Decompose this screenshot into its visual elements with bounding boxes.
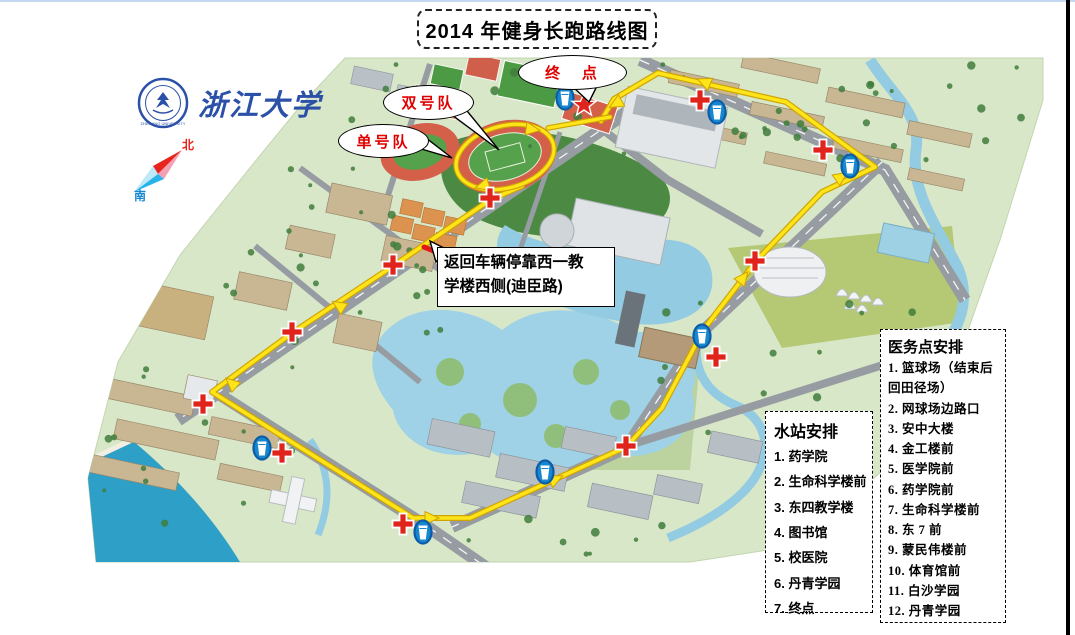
return-note-line1: 返回车辆停靠西一教	[444, 251, 608, 275]
finish-callout: 终 点	[518, 55, 627, 90]
university-seal-icon: ZHEJIANG UNIVERSITY	[136, 76, 190, 130]
window-right-border	[1066, 0, 1070, 635]
list-item: 7. 终点	[774, 596, 868, 621]
water-station-icon	[709, 101, 726, 124]
return-note-line2: 学楼西侧(迪臣路)	[444, 275, 608, 299]
page: 2014 年健身长跑路线图 ZHEJIANG UNIVERSITY 浙江大学 北…	[0, 0, 1075, 635]
water-station-title: 水站安排	[774, 418, 868, 442]
list-item: 2. 生命科学楼前	[774, 469, 868, 494]
list-item: 4. 图书馆	[774, 520, 868, 545]
water-station-list: 水站安排 1. 药学院2. 生命科学楼前3. 东四教学楼4. 图书馆5. 校医院…	[765, 411, 873, 613]
window-top-border	[0, 0, 1075, 2]
list-item: 6. 药学院前	[888, 480, 1002, 500]
list-item: 2. 网球场边路口	[888, 399, 1002, 419]
water-station-icon	[415, 521, 432, 544]
list-item: 3. 东四教学楼	[774, 495, 868, 520]
list-item: 11. 白沙学园	[888, 581, 1002, 601]
list-item: 1. 篮球场（结束后回田径场）	[888, 358, 1002, 399]
water-station-icon	[842, 155, 859, 178]
list-item: 8. 东 7 前	[888, 520, 1002, 540]
return-vehicle-note: 返回车辆停靠西一教 学楼西侧(迪臣路)	[437, 247, 615, 307]
university-name: 浙江大学	[198, 82, 322, 124]
university-logo: ZHEJIANG UNIVERSITY 浙江大学	[136, 74, 326, 132]
svg-text:ZHEJIANG UNIVERSITY: ZHEJIANG UNIVERSITY	[141, 121, 186, 126]
list-item: 12. 丹青学园	[888, 601, 1002, 621]
odd-team-callout: 单号队	[338, 124, 429, 158]
medical-point-title: 医务点安排	[888, 336, 1002, 357]
water-station-items: 1. 药学院2. 生命科学楼前3. 东四教学楼4. 图书馆5. 校医院6. 丹青…	[774, 444, 868, 621]
list-item: 1. 药学院	[774, 444, 868, 469]
water-station-icon	[537, 461, 554, 484]
list-item: 5. 医学院前	[888, 459, 1002, 479]
list-item: 4. 金工楼前	[888, 439, 1002, 459]
compass-north-label: 北	[182, 136, 194, 153]
water-station-icon	[254, 437, 271, 460]
water-station-icon	[694, 325, 711, 348]
medical-point-items: 1. 篮球场（结束后回田径场）2. 网球场边路口3. 安中大楼4. 金工楼前5.…	[888, 358, 1002, 621]
map-title: 2014 年健身长跑路线图	[417, 9, 657, 49]
compass-south-label: 南	[134, 187, 146, 204]
list-item: 9. 蒙民伟楼前	[888, 540, 1002, 560]
medical-point-list: 医务点安排 1. 篮球场（结束后回田径场）2. 网球场边路口3. 安中大楼4. …	[880, 329, 1006, 623]
list-item: 6. 丹青学园	[774, 571, 868, 596]
list-item: 7. 生命科学楼前	[888, 500, 1002, 520]
list-item: 10. 体育馆前	[888, 561, 1002, 581]
list-item: 3. 安中大楼	[888, 419, 1002, 439]
list-item: 5. 校医院	[774, 545, 868, 570]
compass: 北 南	[120, 134, 200, 204]
even-team-callout: 双号队	[383, 85, 474, 120]
